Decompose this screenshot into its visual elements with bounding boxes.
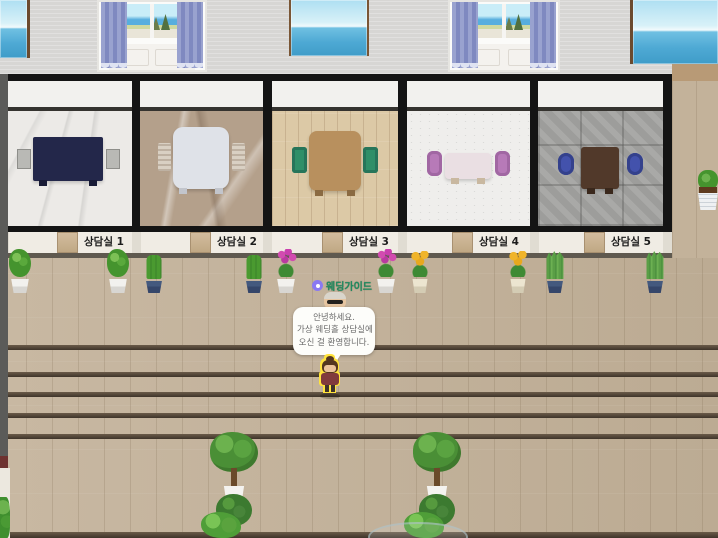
left-side-wall	[0, 74, 8, 456]
room-2-door[interactable]	[190, 232, 211, 253]
leafy-bush-plant	[106, 249, 130, 293]
chair	[363, 147, 378, 173]
back-wall	[0, 0, 718, 74]
chair	[106, 149, 120, 169]
corridor-wall-base	[672, 64, 718, 81]
player-avatar[interactable]	[317, 354, 343, 400]
room-floor	[5, 111, 132, 226]
speech-bubble: 안녕하세요. 가상 웨딩홀 상담실에 오신 걸 환영합니다.	[293, 307, 375, 355]
left-wall-accent	[0, 456, 8, 468]
room-3-door[interactable]	[322, 232, 343, 253]
chair	[427, 151, 442, 176]
potted-tree-trunk	[231, 468, 237, 488]
npc-glasses	[327, 300, 343, 304]
avatar-face	[324, 365, 336, 372]
counseling-room-4	[407, 81, 530, 226]
planter-box	[698, 193, 718, 210]
planter-soil	[699, 187, 717, 194]
stair-edge	[8, 413, 718, 418]
stair-edge	[8, 392, 718, 397]
room-4-door[interactable]	[452, 232, 473, 253]
stair-edge	[8, 532, 718, 538]
room-5-door[interactable]	[584, 232, 605, 253]
pink-orchid-plant	[274, 249, 298, 293]
speech-line: 오신 걸 환영합니다.	[297, 337, 371, 349]
ocean-view-window	[289, 0, 369, 56]
window-mullion	[502, 4, 506, 38]
hallway-floor	[0, 258, 718, 538]
npc-hair	[324, 292, 346, 299]
curtained-window	[97, 0, 207, 72]
sunflower-plant	[506, 249, 530, 293]
room-1-label: 상담실 1	[84, 234, 124, 249]
planter-cluster	[205, 432, 263, 538]
speech-line: 가상 웨딩홀 상담실에	[297, 324, 371, 336]
chair	[292, 147, 307, 173]
lower-wall: 상담실 1 상담실 2 상담실 3 상담실 4 상담실 5	[0, 232, 672, 258]
room-2-label: 상담실 2	[217, 234, 257, 249]
chair	[232, 143, 245, 171]
sunflower-plant	[408, 249, 432, 293]
curtain-right	[530, 2, 556, 68]
pink-orchid-plant	[374, 249, 398, 293]
wall-pillar	[398, 232, 407, 253]
ocean-view-window	[630, 0, 718, 64]
cactus-plant	[142, 249, 166, 293]
room-inner-wall	[538, 81, 663, 107]
snake-plant	[543, 249, 567, 293]
stair-edge	[8, 434, 718, 439]
counseling-room-5	[538, 81, 663, 226]
counseling-room-1	[5, 81, 132, 226]
room-floor	[272, 111, 398, 226]
wall-pillar	[530, 232, 539, 253]
room-floor	[538, 111, 663, 226]
window-mullion	[150, 4, 154, 38]
member-badge-icon	[312, 280, 323, 291]
curtain-left	[452, 2, 478, 68]
cactus-plant	[242, 249, 266, 293]
potted-tree-foliage	[413, 432, 461, 472]
avatar-body	[321, 373, 339, 385]
table	[581, 147, 619, 189]
chair	[17, 149, 31, 169]
avatar-sprite	[320, 356, 340, 396]
counseling-room-3	[272, 81, 398, 226]
npc-nametag: 웨딩가이드	[312, 278, 372, 293]
potted-tree-foliage	[210, 432, 258, 472]
chair	[495, 151, 510, 176]
potted-tree-trunk	[434, 468, 440, 488]
ocean-view-window	[0, 0, 30, 58]
table	[173, 127, 229, 189]
table	[33, 137, 103, 181]
room-inner-wall	[272, 81, 398, 107]
chair	[627, 153, 643, 175]
curtain-right	[177, 2, 203, 68]
room-1-door[interactable]	[57, 232, 78, 253]
wall-pillar	[132, 232, 141, 253]
counseling-room-2	[140, 81, 263, 226]
room-3-label: 상담실 3	[349, 234, 389, 249]
chair	[158, 143, 171, 171]
room-floor	[140, 111, 263, 226]
room-inner-wall	[5, 81, 132, 107]
corner-plant	[0, 497, 10, 538]
monstera-plant	[201, 512, 241, 538]
curtain-left	[101, 2, 127, 68]
room-4-label: 상담실 4	[479, 234, 519, 249]
room-inner-wall	[407, 81, 530, 107]
wall-mounted-planter	[698, 170, 718, 216]
virtual-wedding-hall-scene: 상담실 1 상담실 2 상담실 3 상담실 4 상담실 5 웨딩가이드 안녕하세…	[0, 0, 718, 538]
npc-name: 웨딩가이드	[326, 278, 372, 293]
table	[309, 131, 361, 191]
room-5-label: 상담실 5	[611, 234, 651, 249]
leafy-bush-plant	[8, 249, 32, 293]
snake-plant	[643, 249, 667, 293]
table	[445, 153, 491, 179]
curtained-window	[448, 0, 560, 72]
speech-line: 안녕하세요.	[297, 312, 371, 324]
room-floor	[407, 111, 530, 226]
avatar-legs	[325, 385, 335, 392]
stair-edge	[8, 372, 718, 377]
room-inner-wall	[140, 81, 263, 107]
counseling-rooms-block	[0, 74, 672, 232]
chair	[558, 153, 574, 175]
